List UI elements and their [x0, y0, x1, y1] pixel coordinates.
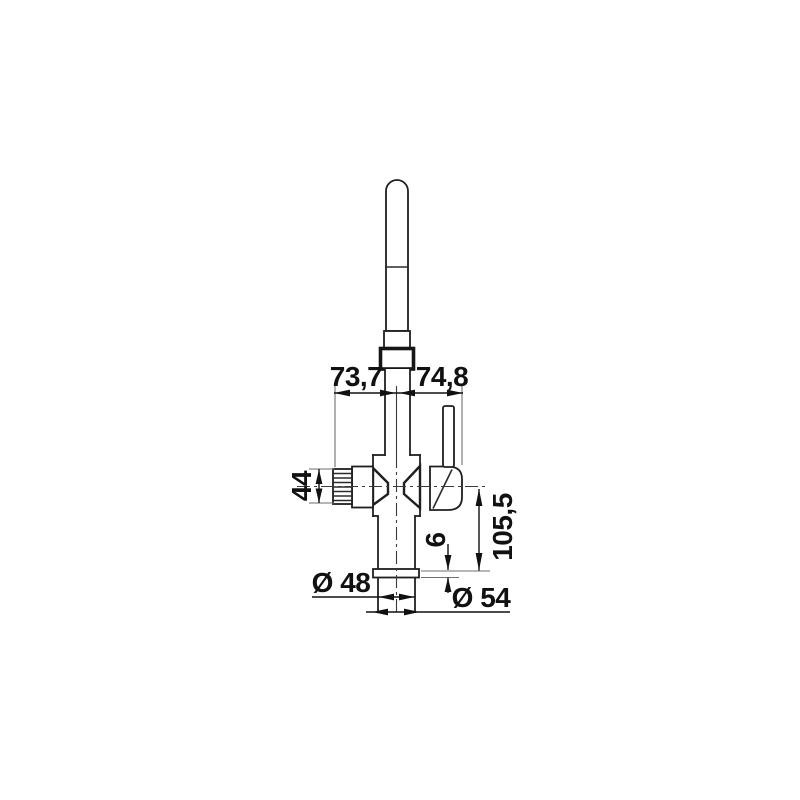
dim-label-flange-diameter: Ø 54 [452, 582, 512, 613]
dim-label-body-height: 105,5 [487, 493, 518, 561]
dim-label-flange-thickness: 6 [420, 532, 451, 547]
swivel-nut [381, 349, 414, 370]
neck [385, 369, 410, 455]
lever-housing [430, 467, 462, 511]
dim-label-knob-height: 44 [286, 470, 317, 501]
faucet-technical-drawing: 73,7 74,8 44 105,5 6 Ø 48 [0, 0, 800, 800]
dim-label-spout-left-offset: 73,7 [330, 361, 383, 392]
spout-collar [384, 331, 410, 348]
dim-label-spout-right-offset: 74,8 [416, 361, 469, 392]
spout [386, 180, 408, 331]
lever-handle [443, 406, 454, 467]
dim-label-shaft-diameter: Ø 48 [312, 567, 371, 598]
drawing-canvas: 73,7 74,8 44 105,5 6 Ø 48 [0, 0, 800, 800]
